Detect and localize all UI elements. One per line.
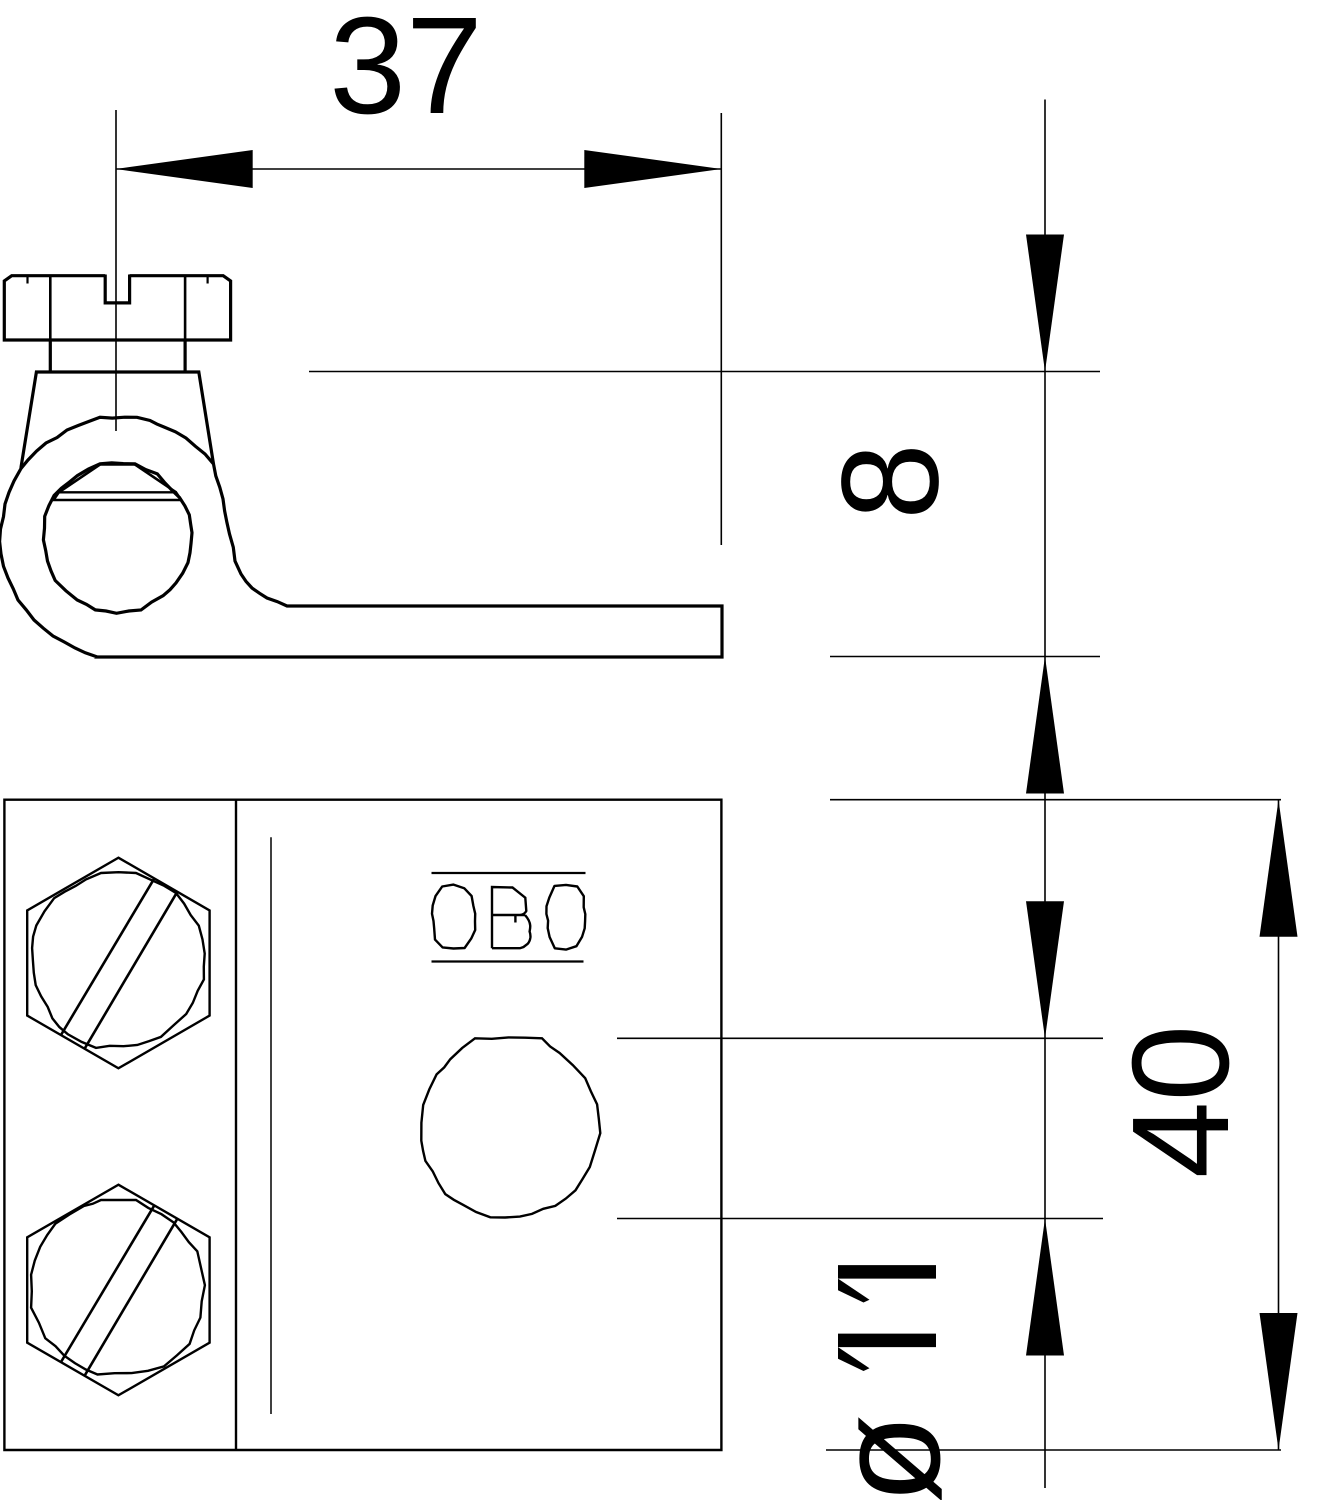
svg-text:ø: ø <box>806 1414 971 1500</box>
svg-text:40: 40 <box>1104 1025 1258 1179</box>
svg-text:37: 37 <box>329 0 483 143</box>
svg-text:8: 8 <box>814 443 968 520</box>
